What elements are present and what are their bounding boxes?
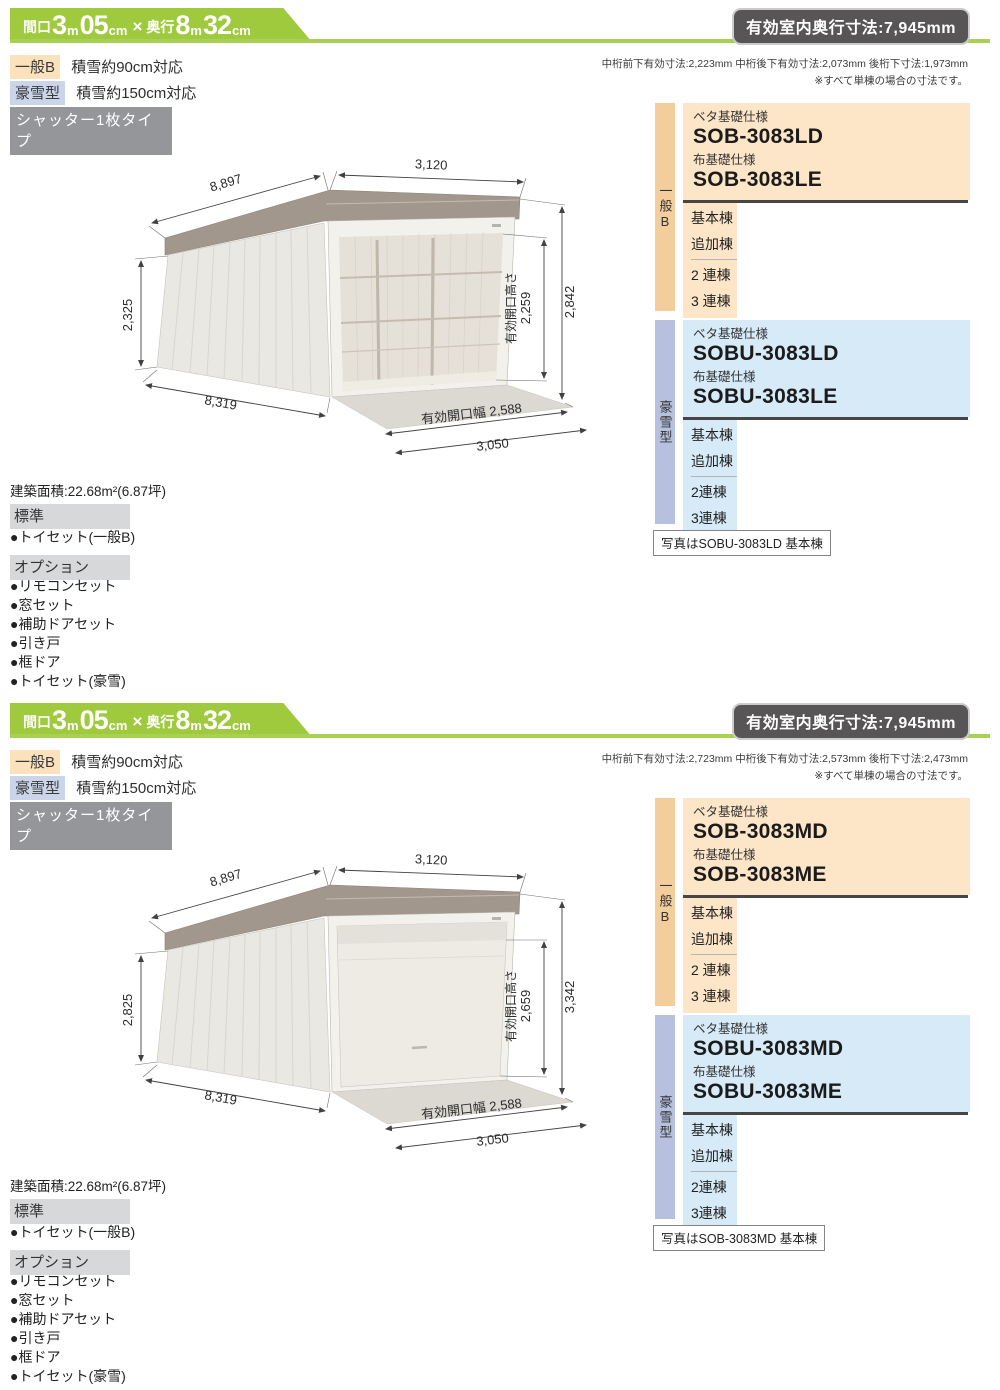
divider — [691, 1171, 737, 1172]
general-b-label: 一般B — [10, 55, 60, 79]
product-section-2: 間口 3 m 05 cm × 奥行 8 m 32 cm 有効室内奥行寸法:7,9… — [0, 695, 1000, 1390]
items-general-b: 基本棟 追加棟 2 連棟 3 連棟 — [683, 203, 737, 318]
logo-mark — [492, 224, 501, 227]
models-heavy-snow: ベタ基礎仕様 SOBU-3083LD 布基礎仕様 SOBU-3083LE — [683, 320, 970, 417]
model-number: SOB-3083MD — [693, 820, 970, 844]
items-heavy-snow: 基本棟 追加棟 2連棟 3連棟 — [683, 420, 737, 535]
tab-heavy-snow: 豪雪型 — [655, 320, 675, 524]
option-item: ●窓セット — [10, 1291, 126, 1310]
banner-width-label: 間口 — [23, 17, 51, 37]
model-number: SOB-3083LE — [693, 168, 970, 192]
dim-bottom-width: 3,050 — [475, 1130, 509, 1149]
heavy-snow-label: 豪雪型 — [10, 776, 65, 800]
tab-general-b: 一般B — [655, 103, 675, 311]
dim-roof-depth: 8,897 — [208, 171, 243, 195]
isometric-drawing-open: 3,120 8,897 2,325 8,319 2,842 有効開口高さ 2,2… — [115, 145, 615, 490]
option-item: ●框ドア — [10, 653, 126, 672]
dim-opening-height-label: 有効開口高さ — [503, 970, 518, 1042]
standard-item: ●トイセット(一般B) — [10, 1222, 135, 1242]
models-general-b: ベタ基礎仕様 SOB-3083LD 布基礎仕様 SOB-3083LE — [683, 103, 970, 200]
dim-front-width: 3,120 — [415, 156, 448, 172]
dim-total-height: 3,342 — [562, 981, 577, 1014]
dim-left-height: 2,825 — [120, 994, 135, 1027]
dim-opening-height: 2,659 — [518, 990, 533, 1023]
tab-general-b: 一般B — [655, 798, 675, 1006]
option-item: ●引き戸 — [10, 1329, 126, 1348]
option-item: ●框ドア — [10, 1348, 126, 1367]
size-banner: 間口 3 m 05 cm × 奥行 8 m 32 cm — [10, 8, 312, 42]
models-general-b: ベタ基礎仕様 SOB-3083MD 布基礎仕様 SOB-3083ME — [683, 798, 970, 895]
divider — [691, 259, 737, 260]
dim-floor-depth: 8,319 — [203, 392, 238, 412]
option-item: ●窓セット — [10, 596, 126, 615]
dim-opening-height: 2,259 — [518, 292, 533, 325]
dim-opening-height-label: 有効開口高さ — [503, 272, 518, 344]
items-heavy-snow: 基本棟 追加棟 2連棟 3連棟 — [683, 1115, 737, 1230]
effective-depth-badge: 有効室内奥行寸法:7,945mm — [732, 8, 970, 45]
product-section-1: 間口 3 m 05 cm × 奥行 8 m 32 cm 有効室内奥行寸法:7,9… — [0, 0, 1000, 695]
banner-width-label: 間口 — [23, 712, 51, 732]
model-number: SOBU-3083LD — [693, 342, 970, 366]
option-item: ●リモコンセット — [10, 577, 126, 596]
options-list: ●リモコンセット ●窓セット ●補助ドアセット ●引き戸 ●框ドア ●トイセット… — [10, 1272, 126, 1386]
dim-floor-depth: 8,319 — [203, 1087, 238, 1107]
banner-depth-label: 奥行 — [146, 17, 174, 37]
spec-row-heavy-snow: 豪雪型 積雪約150cm対応 — [10, 81, 196, 99]
dim-front-width: 3,120 — [415, 851, 448, 867]
dim-total-height: 2,842 — [562, 286, 577, 319]
banner-depth-label: 奥行 — [146, 712, 174, 732]
dim-roof-depth: 8,897 — [208, 866, 243, 890]
models-heavy-snow: ベタ基礎仕様 SOBU-3083MD 布基礎仕様 SOBU-3083ME — [683, 1015, 970, 1112]
option-item: ●トイセット(豪雪) — [10, 672, 126, 691]
option-item: ●引き戸 — [10, 634, 126, 653]
building-area: 建築面積:22.68m²(6.87坪) — [10, 1175, 166, 1195]
tab-heavy-snow: 豪雪型 — [655, 1015, 675, 1219]
effective-depth-badge: 有効室内奥行寸法:7,945mm — [732, 703, 970, 740]
model-number: SOBU-3083ME — [693, 1080, 970, 1104]
spec-row-heavy-snow: 豪雪型 積雪約150cm対応 — [10, 776, 196, 794]
model-number: SOB-3083ME — [693, 863, 970, 887]
option-item: ●リモコンセット — [10, 1272, 126, 1291]
dimension-notes: 中桁前下有効寸法:2,723mm 中桁後下有効寸法:2,573mm 後桁下寸法:… — [602, 751, 968, 785]
option-item: ●補助ドアセット — [10, 1310, 126, 1329]
shutter-door — [337, 922, 507, 1087]
model-number: SOBU-3083MD — [693, 1037, 970, 1061]
isometric-drawing-closed: 3,120 8,897 2,825 8,319 3,342 有効開口高さ 2,6… — [115, 840, 615, 1185]
items-general-b: 基本棟 追加棟 2 連棟 3 連棟 — [683, 898, 737, 1013]
standard-header: 標準 — [10, 504, 130, 529]
divider — [691, 954, 737, 955]
dimension-notes: 中桁前下有効寸法:2,223mm 中桁後下有効寸法:2,073mm 後桁下寸法:… — [602, 56, 968, 90]
photo-caption: 写真はSOBU-3083LD 基本棟 — [653, 530, 831, 556]
logo-mark — [492, 917, 501, 920]
multiply-sign: × — [132, 712, 142, 732]
heavy-snow-label: 豪雪型 — [10, 81, 65, 105]
spec-row-general: 一般B 積雪約90cm対応 — [10, 750, 183, 768]
spec-row-general: 一般B 積雪約90cm対応 — [10, 55, 183, 73]
size-banner: 間口 3 m 05 cm × 奥行 8 m 32 cm — [10, 703, 312, 737]
model-number: SOBU-3083LE — [693, 385, 970, 409]
standard-item: ●トイセット(一般B) — [10, 527, 135, 547]
option-item: ●トイセット(豪雪) — [10, 1367, 126, 1386]
door-handle — [412, 1047, 427, 1048]
dim-left-height: 2,325 — [120, 299, 135, 332]
building-area: 建築面積:22.68m²(6.87坪) — [10, 480, 166, 500]
divider — [691, 476, 737, 477]
general-b-label: 一般B — [10, 750, 60, 774]
dim-bottom-width: 3,050 — [475, 435, 509, 454]
standard-header: 標準 — [10, 1199, 130, 1224]
multiply-sign: × — [132, 17, 142, 37]
model-number: SOB-3083LD — [693, 125, 970, 149]
options-list: ●リモコンセット ●窓セット ●補助ドアセット ●引き戸 ●框ドア ●トイセット… — [10, 577, 126, 691]
option-item: ●補助ドアセット — [10, 615, 126, 634]
photo-caption: 写真はSOB-3083MD 基本棟 — [653, 1225, 825, 1251]
